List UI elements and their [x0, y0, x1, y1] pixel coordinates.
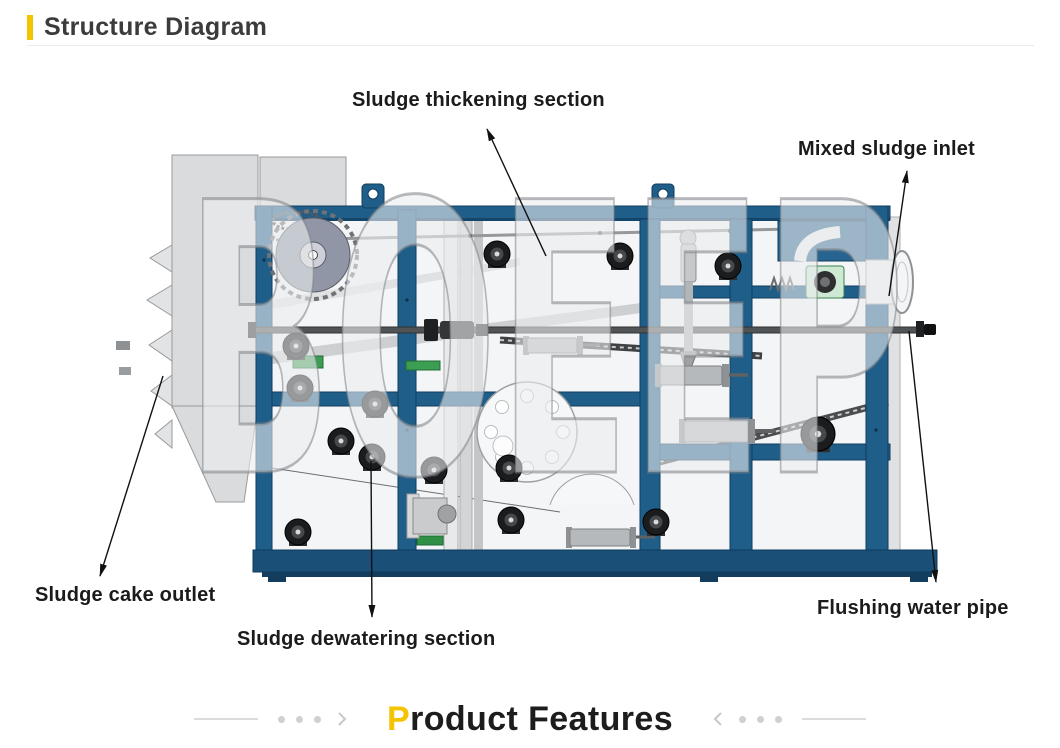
- arrow-dewatering: [371, 461, 372, 617]
- dot-icon: [296, 716, 303, 723]
- section-title-product-features: Product Features: [387, 698, 673, 740]
- dot-icon: [314, 716, 321, 723]
- arrow-cake-outlet: [100, 376, 163, 576]
- dots-right: [739, 716, 782, 723]
- label-sludge-dewatering-section: Sludge dewatering section: [237, 628, 495, 651]
- label-flushing-water-pipe: Flushing water pipe: [817, 597, 1009, 620]
- watermark-text: BOEEP: [185, 125, 905, 561]
- machine-diagram: BOEEP: [0, 0, 1060, 748]
- dot-icon: [757, 716, 764, 723]
- label-sludge-cake-outlet: Sludge cake outlet: [35, 584, 215, 607]
- page: Structure Diagram: [0, 0, 1060, 748]
- label-sludge-thickening-section: Sludge thickening section: [352, 89, 605, 112]
- chevron-left-icon: [713, 711, 723, 727]
- chevron-right-icon: [337, 711, 347, 727]
- arrow-flushing: [909, 331, 936, 582]
- section-footer: Product Features: [0, 698, 1060, 740]
- divider-line-right: [802, 718, 866, 720]
- accent-letter: P: [387, 700, 410, 738]
- dot-icon: [278, 716, 285, 723]
- dot-icon: [775, 716, 782, 723]
- dots-left: [278, 716, 321, 723]
- label-mixed-sludge-inlet: Mixed sludge inlet: [798, 138, 975, 161]
- scraper-wheel: [147, 245, 172, 448]
- section-title-rest: roduct Features: [410, 700, 673, 738]
- divider-line-left: [194, 718, 258, 720]
- dot-icon: [739, 716, 746, 723]
